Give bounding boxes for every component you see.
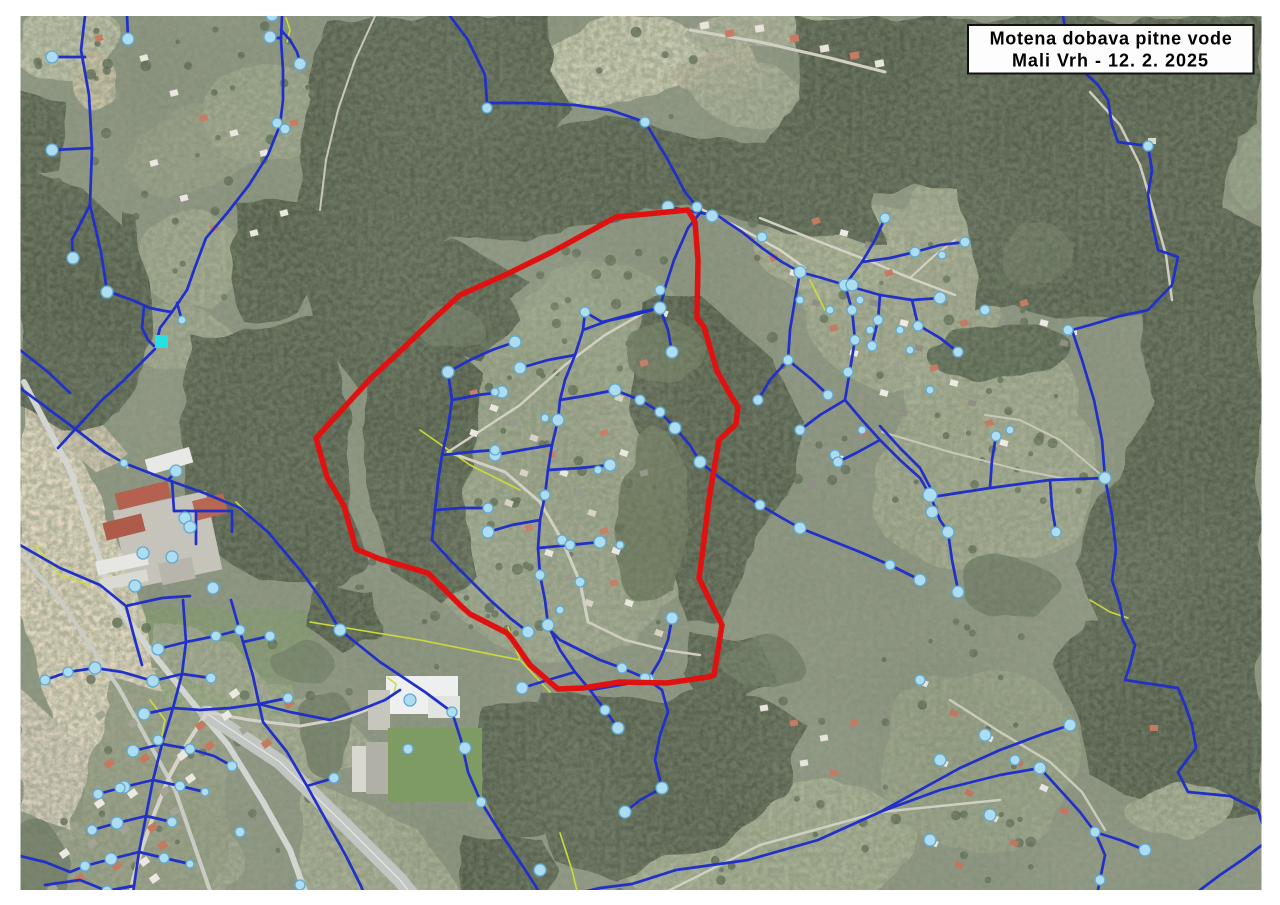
svg-text:Motena dobava pitne vode: Motena dobava pitne vode <box>990 29 1233 49</box>
svg-text:Mali Vrh - 12. 2. 2025: Mali Vrh - 12. 2. 2025 <box>1012 50 1209 70</box>
